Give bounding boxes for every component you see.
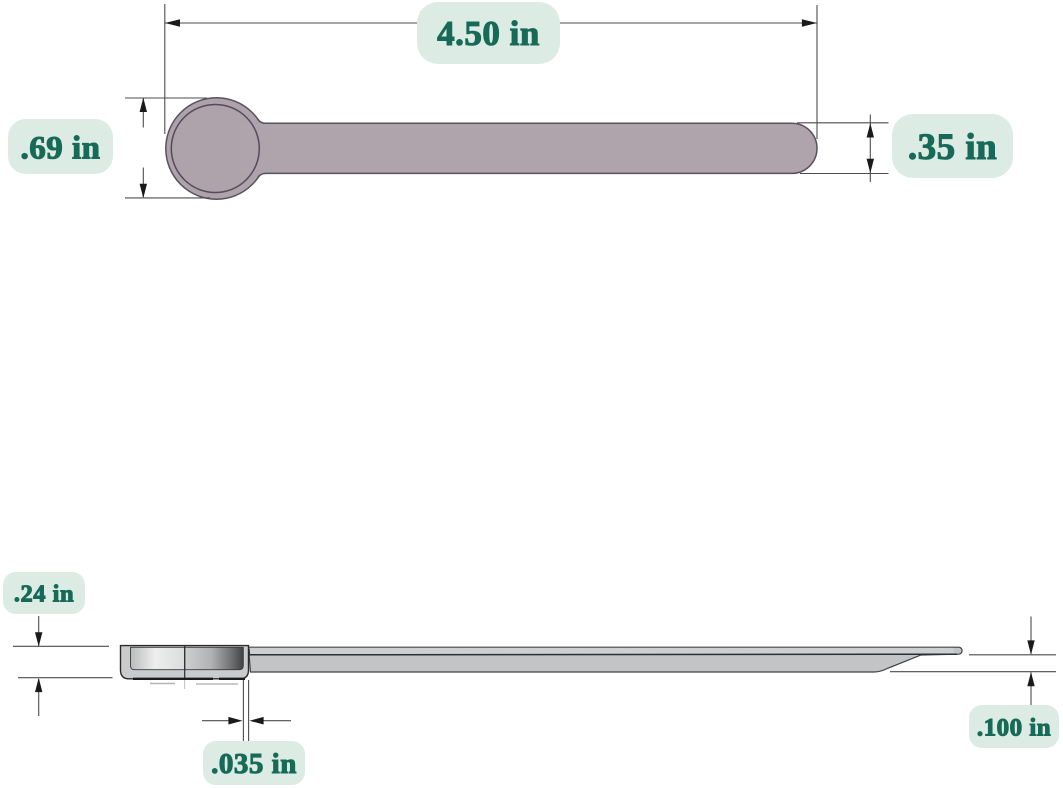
svg-text:4.50 in: 4.50 in <box>437 14 540 53</box>
svg-text:.35 in: .35 in <box>908 127 997 168</box>
svg-text:.24 in: .24 in <box>14 581 74 608</box>
svg-text:.69 in: .69 in <box>20 130 100 166</box>
svg-text:.100 in: .100 in <box>977 715 1051 742</box>
svg-text:.035 in: .035 in <box>211 748 297 780</box>
